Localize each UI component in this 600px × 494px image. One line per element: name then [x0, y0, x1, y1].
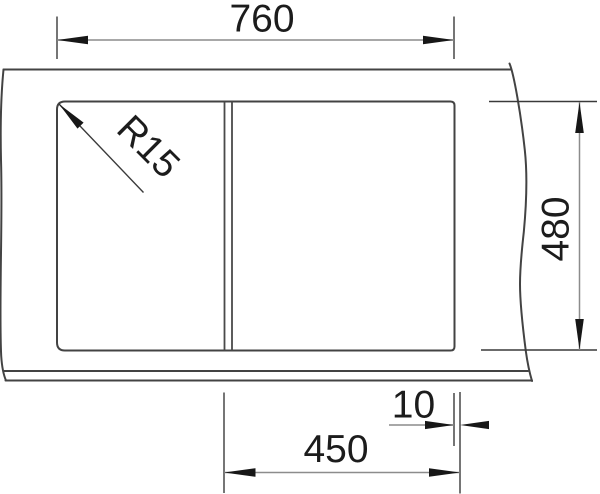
right-cut-edge — [510, 64, 533, 382]
left-cut-edge — [0, 70, 6, 381]
sink-outline — [0, 64, 532, 382]
dimension-label-480: 480 — [535, 196, 578, 261]
dimension-label-760: 760 — [229, 0, 294, 41]
arrowhead-left — [460, 421, 489, 429]
arrowhead-up — [575, 102, 584, 133]
arrowhead-right — [423, 36, 454, 45]
arrowhead-down — [575, 319, 584, 350]
radius-label-r15: R15 — [108, 108, 187, 187]
dimension-label-10: 10 — [392, 384, 435, 427]
sink-dimension-drawing: 760 480 450 10 R15 — [0, 0, 600, 494]
arrowhead-right — [429, 468, 460, 477]
corner-radius-callout: R15 — [59, 104, 187, 193]
dimension-label-450: 450 — [303, 428, 368, 471]
dimension-edge-offset: 10 — [389, 384, 489, 447]
dimension-overall-width: 760 — [57, 0, 454, 59]
radius-arrowhead — [59, 104, 84, 129]
arrowhead-left — [224, 468, 256, 477]
dimension-depth: 480 — [481, 102, 597, 351]
arrowhead-left — [57, 36, 88, 45]
technical-drawing-page: 760 480 450 10 R15 — [0, 0, 600, 494]
